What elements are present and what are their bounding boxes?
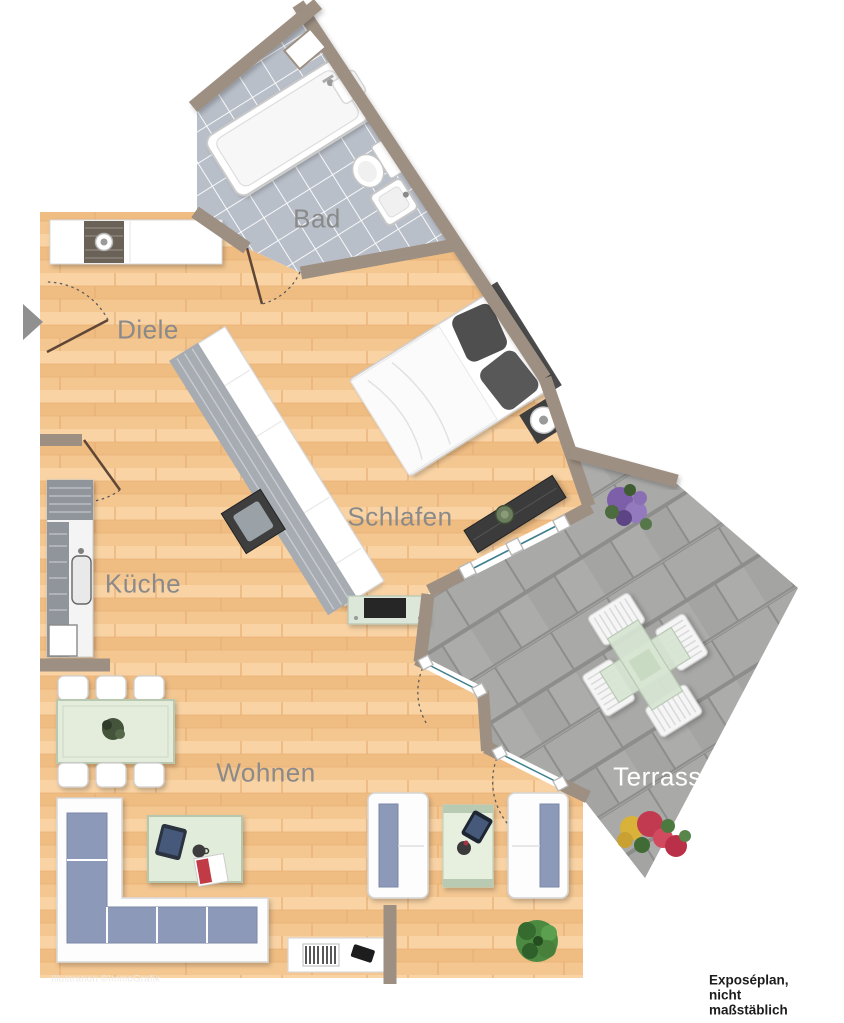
kitchen-base-cabinet bbox=[49, 625, 77, 656]
room-label-terrasse: Terrasse bbox=[613, 762, 717, 793]
houseplant-leaf-3 bbox=[522, 943, 538, 959]
flowers-green-3 bbox=[624, 484, 636, 496]
washing-machine-door-inner bbox=[101, 239, 108, 246]
coffee-table-2-cap-top bbox=[443, 805, 493, 813]
coffee-cup-2-deco bbox=[464, 841, 469, 846]
houseplant-leaf-2 bbox=[541, 925, 557, 941]
wall-terrace-step bbox=[483, 691, 487, 751]
hall-cabinet bbox=[50, 220, 222, 264]
room-label-diele: Diele bbox=[117, 315, 179, 346]
table-decor-3 bbox=[115, 729, 125, 739]
table-decor-2 bbox=[102, 720, 112, 730]
radio bbox=[303, 944, 339, 966]
kitchen-cooktop-block bbox=[47, 480, 93, 520]
illustration-credit: Illustration ©ImmoGrafik bbox=[51, 974, 160, 985]
flowers-yellow-2 bbox=[617, 832, 633, 848]
kitchen-faucet bbox=[78, 548, 84, 554]
flowers-green-4 bbox=[634, 837, 650, 853]
wall-terrace-4 bbox=[420, 594, 428, 662]
room-label-schlafen: Schlafen bbox=[347, 502, 452, 533]
dining-chair bbox=[58, 763, 88, 787]
flowers-green-5 bbox=[661, 819, 675, 833]
flowers-green-1 bbox=[605, 505, 619, 519]
tv-screen bbox=[364, 598, 406, 618]
dining-chair bbox=[134, 763, 164, 787]
coffee-table-2-cap-bottom bbox=[443, 879, 493, 887]
floorplan-page: Bad Diele Küche Schlafen Wohnen Terrasse… bbox=[0, 0, 844, 1023]
sofa-right-backrest bbox=[540, 804, 559, 887]
tv-knob-left bbox=[354, 616, 358, 620]
room-label-bad: Bad bbox=[293, 204, 341, 235]
kitchen-sink bbox=[72, 556, 91, 604]
houseplant-leaf-1 bbox=[518, 922, 536, 940]
dining-chair bbox=[58, 676, 88, 700]
sofa-left-backrest bbox=[379, 804, 398, 887]
houseplant-center bbox=[533, 936, 543, 946]
scale-disclaimer: Exposéplan, nicht maßstäblich bbox=[709, 973, 799, 1018]
flowers-green-2 bbox=[640, 518, 652, 530]
room-label-kueche: Küche bbox=[105, 569, 181, 600]
room-label-wohnen: Wohnen bbox=[216, 758, 315, 789]
dining-chair bbox=[96, 676, 126, 700]
dining-chair bbox=[96, 763, 126, 787]
flowers-green-6 bbox=[679, 830, 691, 842]
dining-chair bbox=[134, 676, 164, 700]
